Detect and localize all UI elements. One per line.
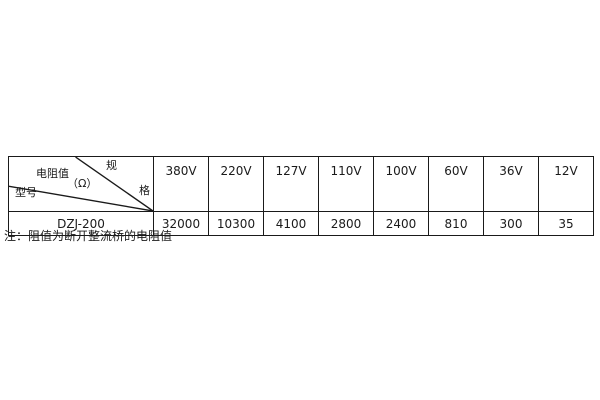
corner-label-spec-char-2: 格	[139, 185, 150, 196]
corner-label-resistance: 电阻值	[36, 168, 69, 179]
value-cell-220v: 10300	[209, 212, 264, 236]
value-cell-100v: 2400	[374, 212, 429, 236]
page-background: 规 格 电阻值 （Ω） 型号 380V 220V 127V 110V 100V …	[0, 0, 600, 400]
col-header-36v: 36V	[484, 157, 539, 212]
col-header-100v: 100V	[374, 157, 429, 212]
footnote: 注：阻值为断开整流桥的电阻值	[4, 229, 172, 243]
corner-header-cell: 规 格 电阻值 （Ω） 型号	[9, 157, 154, 212]
col-header-110v: 110V	[319, 157, 374, 212]
corner-label-spec-char-1: 规	[106, 160, 117, 171]
value-cell-12v: 35	[539, 212, 594, 236]
value-cell-127v: 4100	[264, 212, 319, 236]
col-header-12v: 12V	[539, 157, 594, 212]
corner-label-ohm-unit: （Ω）	[67, 178, 97, 189]
col-header-60v: 60V	[429, 157, 484, 212]
header-row: 规 格 电阻值 （Ω） 型号 380V 220V 127V 110V 100V …	[9, 157, 594, 212]
value-cell-36v: 300	[484, 212, 539, 236]
corner-label-model: 型号	[15, 187, 37, 198]
value-cell-60v: 810	[429, 212, 484, 236]
resistance-spec-table: 规 格 电阻值 （Ω） 型号 380V 220V 127V 110V 100V …	[8, 156, 594, 236]
col-header-380v: 380V	[154, 157, 209, 212]
col-header-220v: 220V	[209, 157, 264, 212]
col-header-127v: 127V	[264, 157, 319, 212]
value-cell-110v: 2800	[319, 212, 374, 236]
